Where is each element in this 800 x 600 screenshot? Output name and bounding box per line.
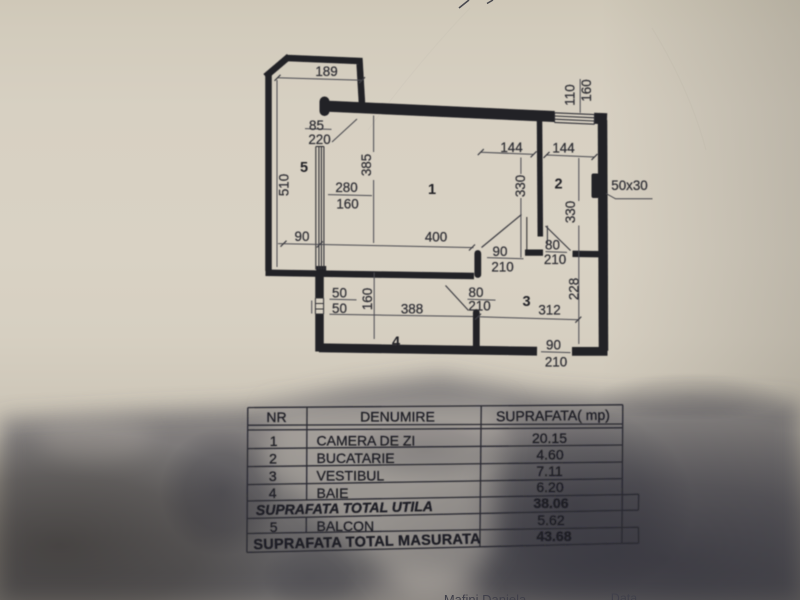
svg-text:Data: Data [611,592,637,600]
svg-text:50x30: 50x30 [611,178,647,193]
svg-text:210: 210 [545,355,567,370]
svg-text:5.62: 5.62 [537,512,564,528]
svg-text:210: 210 [468,299,490,314]
svg-text:BUCATARIE: BUCATARIE [317,450,395,466]
svg-text:NR: NR [266,409,286,425]
svg-text:1: 1 [270,433,278,449]
svg-text:280: 280 [335,180,357,195]
svg-text:160: 160 [360,288,375,310]
svg-text:228: 228 [567,278,582,300]
svg-text:220: 220 [308,132,330,147]
svg-text:VESTIBUL: VESTIBUL [317,468,385,484]
svg-text:144: 144 [552,140,575,155]
svg-text:4.60: 4.60 [536,447,563,463]
svg-text:144: 144 [500,140,523,155]
svg-text:SUPRAFATA( mp): SUPRAFATA( mp) [496,407,610,425]
svg-text:2: 2 [269,450,277,466]
svg-text:385: 385 [359,154,374,176]
svg-text:2: 2 [554,177,562,193]
svg-text:400: 400 [425,230,447,245]
svg-text:330: 330 [513,175,528,197]
svg-text:BAIE: BAIE [317,485,349,501]
svg-text:43.68: 43.68 [536,528,571,544]
svg-text:CAMERA DE ZI: CAMERA DE ZI [317,432,416,448]
svg-text:4: 4 [392,335,400,351]
svg-text:5: 5 [270,519,278,535]
svg-text:5: 5 [300,160,308,176]
svg-text:7.11: 7.11 [536,463,562,479]
svg-text:DENUMIRE: DENUMIRE [360,409,435,425]
svg-text:85: 85 [309,118,324,133]
svg-text:110: 110 [563,84,578,105]
svg-text:1: 1 [428,182,436,198]
svg-text:BALCON: BALCON [317,518,375,534]
svg-text:210: 210 [544,252,566,267]
svg-text:3: 3 [269,468,277,484]
svg-text:50: 50 [332,286,347,301]
svg-text:38.06: 38.06 [533,495,568,511]
svg-text:6.20: 6.20 [536,479,563,495]
svg-text:189: 189 [315,64,337,79]
svg-text:90: 90 [546,338,561,353]
svg-text:4: 4 [269,485,277,501]
svg-text:80: 80 [545,238,560,253]
svg-text:388: 388 [401,302,423,317]
svg-text:50: 50 [332,301,347,316]
svg-text:Mafini Daniela: Mafini Daniela [444,592,527,600]
svg-text:20.15: 20.15 [532,430,567,446]
svg-text:90: 90 [295,229,310,244]
svg-text:160: 160 [336,197,358,212]
svg-text:510: 510 [277,174,292,196]
svg-text:90: 90 [493,244,508,259]
svg-text:160: 160 [579,79,594,101]
svg-text:210: 210 [491,260,513,275]
svg-text:330: 330 [563,201,578,223]
svg-text:312: 312 [538,303,560,318]
svg-text:3: 3 [522,294,530,310]
